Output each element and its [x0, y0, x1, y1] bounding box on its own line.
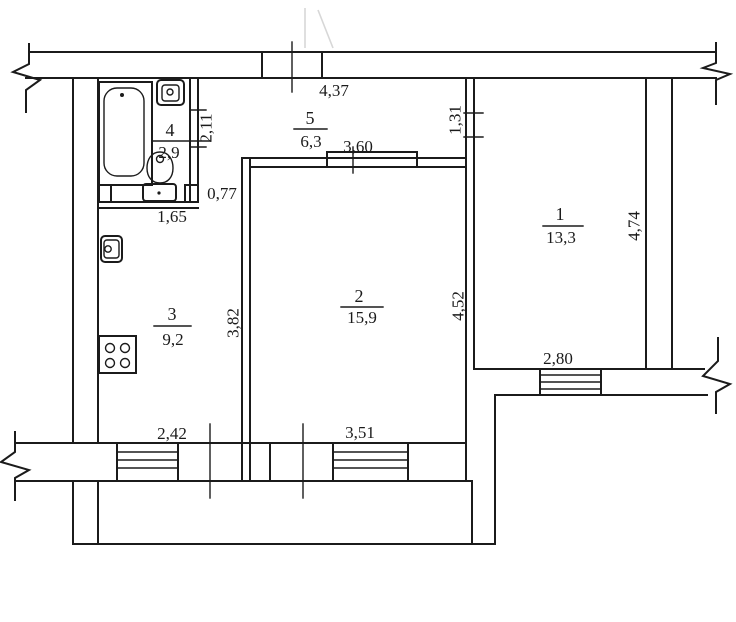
dim-bath-passage: 0,77 [207, 184, 237, 203]
dim-room1-door: 1,31 [446, 105, 465, 135]
dim-entry-width: 4,37 [319, 81, 349, 100]
entrance-door-marks [262, 42, 322, 92]
room1-walls [464, 78, 730, 413]
bottom-wall [1, 424, 472, 500]
erased-pencil-mark [305, 8, 333, 48]
left-exterior-wall [73, 78, 98, 443]
stove-icon [99, 336, 136, 373]
room2-number: 2 [355, 286, 364, 306]
wall-break-icon [703, 338, 730, 413]
room3-area: 9,2 [162, 330, 183, 349]
bathtub-icon [99, 82, 152, 185]
room1-number: 1 [556, 204, 565, 224]
room4-area: 2,9 [158, 143, 179, 162]
room4-number: 4 [166, 120, 175, 140]
top-exterior-wall [13, 43, 730, 112]
room1-area: 13,3 [546, 228, 576, 247]
room3-label: 3 9,2 [154, 304, 191, 349]
kitchen-sink-icon [101, 236, 122, 262]
room5-label: 5 6,3 [294, 108, 327, 151]
room2-window-icon [333, 443, 408, 481]
balcony-outline [73, 395, 495, 544]
room1-label: 1 13,3 [543, 204, 583, 247]
room5-area: 6,3 [300, 132, 321, 151]
dim-kitchen-depth: 3,82 [224, 308, 243, 338]
washbasin-icon [157, 80, 184, 105]
dim-bath-width: 1,65 [157, 207, 187, 226]
kitchen-window-icon [117, 443, 178, 481]
dim-opening-width: 3,60 [343, 137, 373, 156]
room2-label: 2 15,9 [341, 286, 383, 327]
dim-room1-depth: 4,74 [625, 211, 644, 241]
floor-plan-drawing: 5 6,3 4 2,9 1 13,3 3 9,2 2 15,9 4,37 3,6… [0, 0, 736, 622]
room3-number: 3 [168, 304, 177, 324]
room1-window-icon [540, 369, 601, 395]
dim-room2-depth: 4,52 [449, 291, 468, 321]
dim-kitchen-window: 2,42 [157, 424, 187, 443]
room5-number: 5 [306, 108, 315, 128]
room2-area: 15,9 [347, 308, 377, 327]
dim-room1-window: 2,80 [543, 349, 573, 368]
dim-bath-depth: 2,11 [197, 113, 216, 142]
floor-plan-canvas: 5 6,3 4 2,9 1 13,3 3 9,2 2 15,9 4,37 3,6… [0, 0, 736, 622]
dim-room2-window: 3,51 [345, 423, 375, 442]
